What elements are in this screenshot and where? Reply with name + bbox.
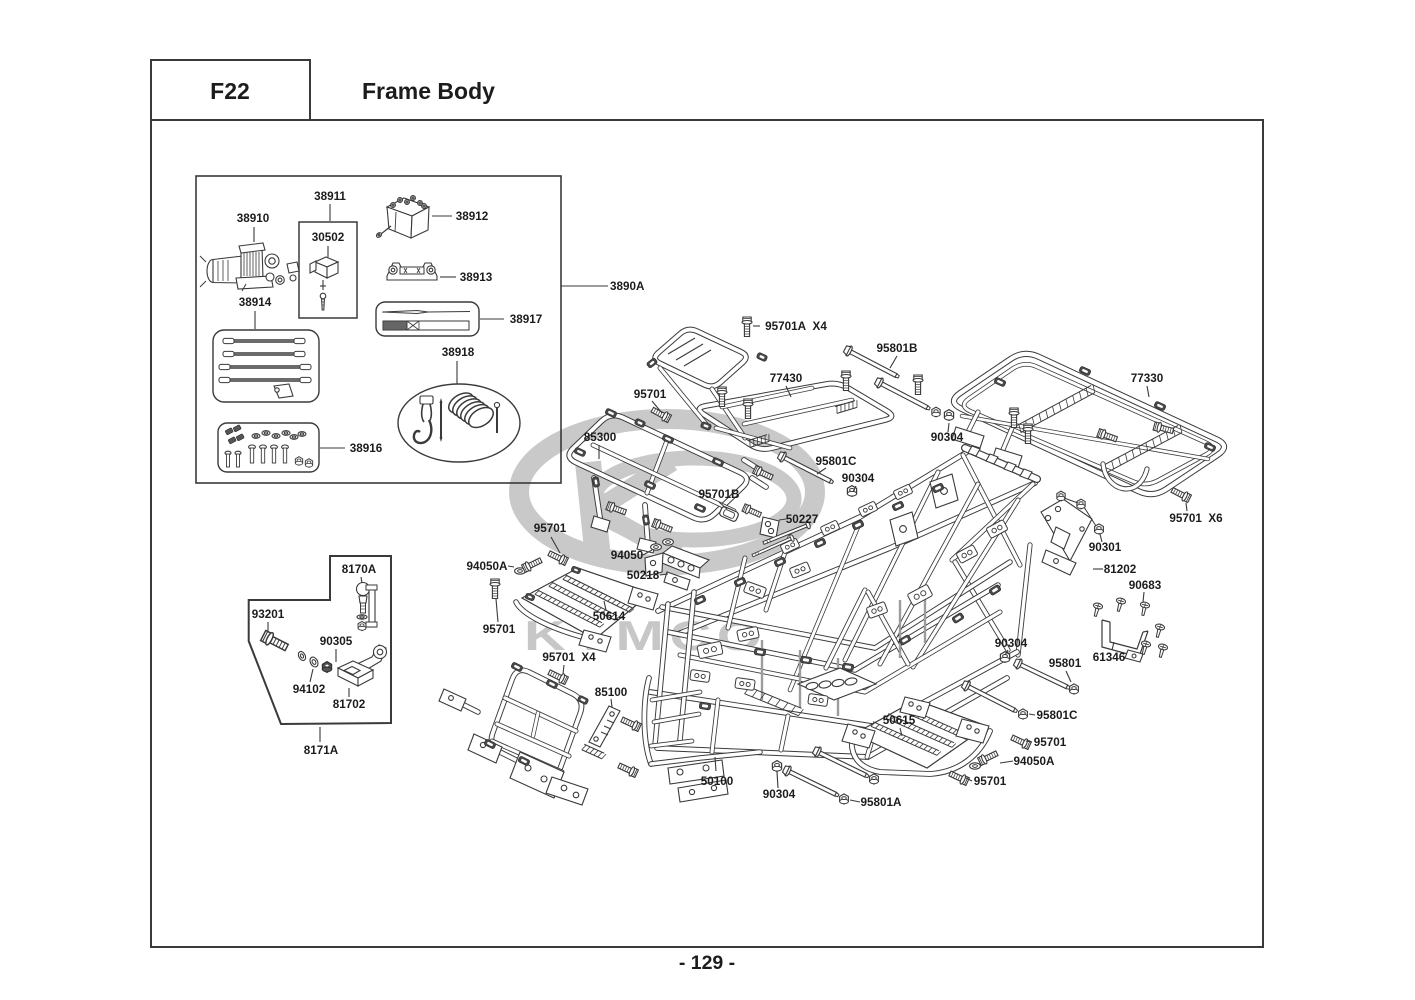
svg-text:38911: 38911 [314, 190, 346, 203]
svg-text:Frame Body: Frame Body [362, 78, 495, 104]
svg-text:94050A: 94050A [1014, 755, 1056, 768]
svg-text:50615: 50615 [883, 714, 916, 727]
svg-text:- 129 -: - 129 - [679, 952, 735, 974]
svg-text:3890A: 3890A [610, 280, 645, 293]
svg-text:90683: 90683 [1129, 579, 1162, 592]
svg-text:95701 X4: 95701 X4 [542, 651, 596, 664]
svg-text:50227: 50227 [786, 513, 819, 526]
svg-text:90304: 90304 [842, 472, 875, 485]
svg-text:50100: 50100 [701, 775, 734, 788]
svg-text:50614: 50614 [593, 610, 626, 623]
svg-text:95801C: 95801C [816, 455, 858, 468]
svg-text:95801: 95801 [1049, 657, 1082, 670]
svg-text:95701: 95701 [534, 522, 567, 535]
svg-text:8170A: 8170A [342, 563, 377, 576]
svg-text:38918: 38918 [442, 346, 475, 359]
svg-text:30502: 30502 [312, 231, 345, 244]
svg-text:95701 X6: 95701 X6 [1169, 512, 1223, 525]
svg-text:95701: 95701 [634, 388, 667, 401]
svg-text:38916: 38916 [350, 442, 383, 455]
svg-text:61346: 61346 [1093, 651, 1126, 664]
svg-text:38910: 38910 [237, 212, 270, 225]
svg-text:95701: 95701 [483, 623, 516, 636]
svg-text:95801A: 95801A [861, 796, 903, 809]
svg-text:50218: 50218 [627, 569, 660, 582]
svg-text:81702: 81702 [333, 698, 366, 711]
svg-text:94050: 94050 [611, 549, 644, 562]
svg-text:85100: 85100 [595, 686, 628, 699]
svg-text:90301: 90301 [1089, 541, 1122, 554]
svg-text:95701: 95701 [1034, 736, 1067, 749]
svg-text:85300: 85300 [584, 431, 617, 444]
svg-text:90305: 90305 [320, 635, 353, 648]
svg-text:81202: 81202 [1104, 563, 1137, 576]
svg-text:90304: 90304 [995, 637, 1028, 650]
svg-text:93201: 93201 [252, 608, 285, 621]
svg-text:77430: 77430 [770, 372, 803, 385]
svg-text:38914: 38914 [239, 296, 272, 309]
svg-text:38912: 38912 [456, 210, 489, 223]
svg-text:38917: 38917 [510, 313, 543, 326]
svg-text:77330: 77330 [1131, 372, 1164, 385]
svg-text:94102: 94102 [293, 683, 326, 696]
svg-text:95801C: 95801C [1037, 709, 1079, 722]
svg-text:90304: 90304 [931, 431, 964, 444]
svg-text:95801B: 95801B [877, 342, 918, 355]
svg-text:94050A: 94050A [467, 560, 509, 573]
svg-text:95701A X4: 95701A X4 [765, 320, 827, 333]
svg-text:90304: 90304 [763, 788, 796, 801]
svg-text:95701: 95701 [974, 775, 1007, 788]
svg-text:F22: F22 [210, 78, 250, 104]
svg-text:38913: 38913 [460, 271, 493, 284]
svg-text:8171A: 8171A [304, 744, 339, 757]
svg-text:95701B: 95701B [699, 488, 740, 501]
